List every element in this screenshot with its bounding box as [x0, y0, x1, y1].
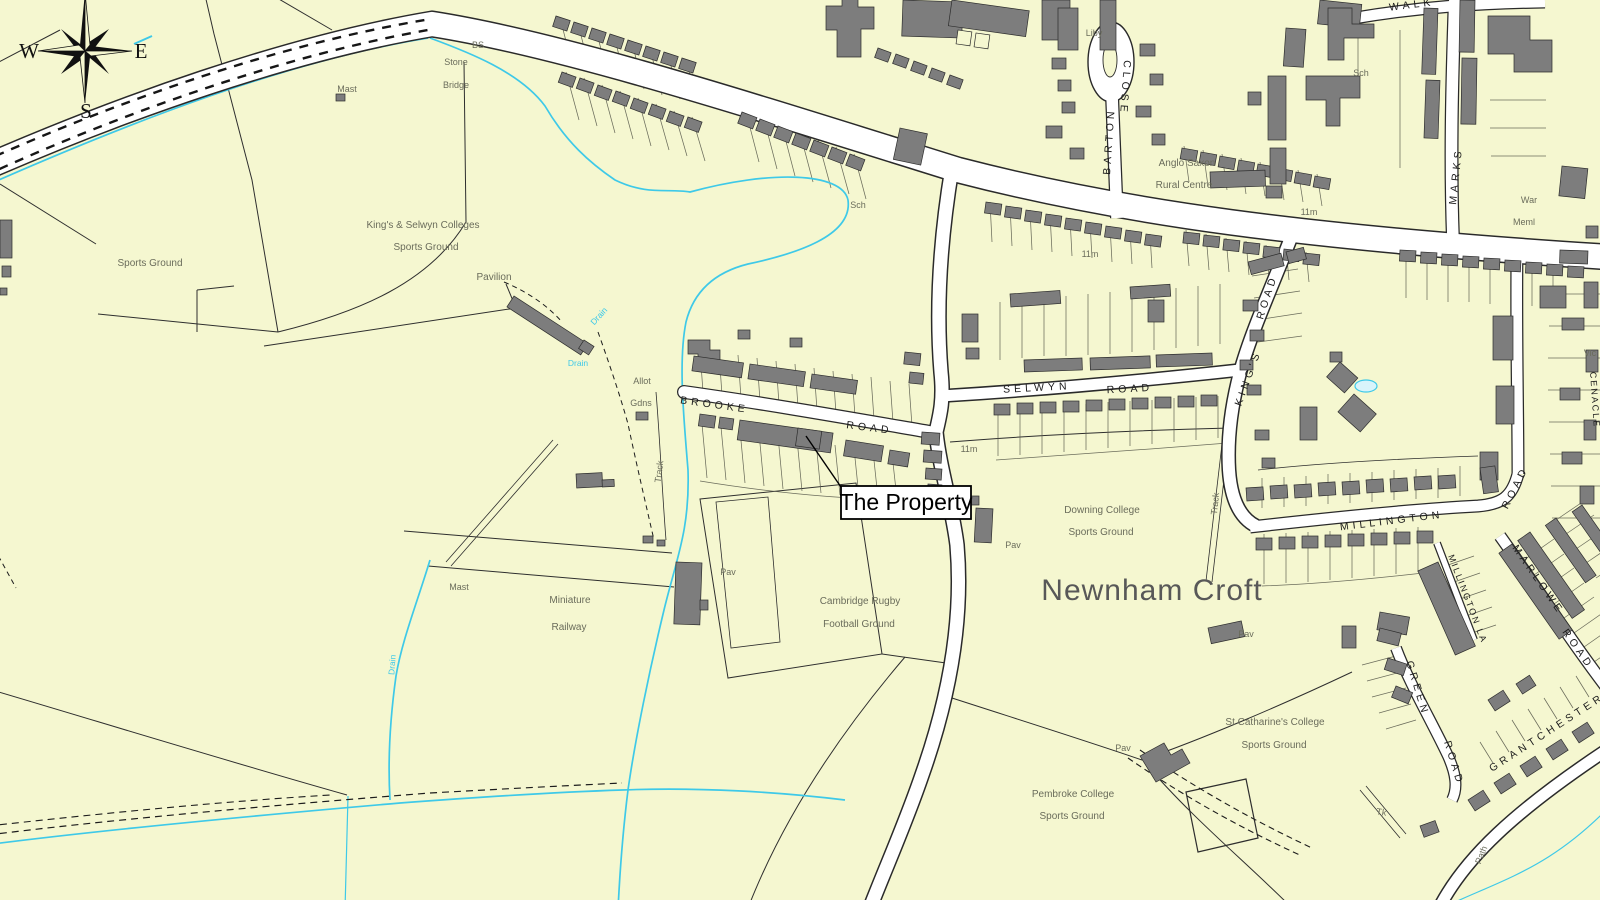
- label-tk: Tk: [1376, 806, 1388, 817]
- label-railway: Railway: [551, 622, 586, 633]
- property-label-text: The Property: [840, 489, 973, 515]
- label-mast-nw: Mast: [337, 84, 357, 94]
- label-stone: Stone: [444, 57, 468, 67]
- label-kings-selwyn-sports-ground: Sports Ground: [393, 242, 458, 253]
- label-vic: Vic: [1584, 348, 1597, 358]
- downing-pavilion: [974, 508, 993, 543]
- label-sch-ne: Sch: [1353, 68, 1369, 78]
- compass-west: W: [19, 39, 39, 63]
- label-miniature: Miniature: [549, 595, 591, 606]
- label-liby: Liby: [1086, 28, 1103, 38]
- label-11m-centre: 11m: [1082, 249, 1099, 259]
- label-pav-downing: Pav: [1005, 540, 1021, 550]
- label-drain-2: Drain: [568, 358, 589, 368]
- label-pembroke-sports-ground: Sports Ground: [1039, 811, 1104, 822]
- label-war: War: [1521, 195, 1537, 205]
- compass-south: S: [80, 99, 92, 123]
- road-label-selwyn-road: ROAD: [1106, 382, 1153, 396]
- pond: [1355, 380, 1377, 392]
- label-bridge: Bridge: [443, 80, 469, 90]
- label-pavilion: Pavilion: [476, 272, 511, 283]
- label-sch-centre: Sch: [850, 200, 866, 210]
- label-pav-rugby: Pav: [720, 567, 736, 577]
- label-cambridge-rugby: Cambridge Rugby: [820, 596, 901, 607]
- compass-east: E: [135, 39, 148, 63]
- label-allot: Allot: [633, 376, 651, 386]
- war-memorial-building: [1559, 166, 1588, 199]
- label-pav-newnham: Pav: [1238, 629, 1254, 639]
- label-anglo-saxon: Anglo Saxon: [1159, 158, 1216, 169]
- label-downing-college: Downing College: [1064, 505, 1140, 516]
- label-kings-selwyn-colleges: King's & Selwyn Colleges: [366, 220, 479, 231]
- label-gdns: Gdns: [630, 398, 652, 408]
- label-newnham-croft: Newnham Croft: [1041, 574, 1262, 607]
- label-mast-s: Mast: [449, 582, 469, 592]
- os-style-map: Mast BS Stone Bridge Sports Ground King'…: [0, 0, 1600, 900]
- label-st-catharines-sports-ground: Sports Ground: [1241, 740, 1306, 751]
- label-pembroke-college: Pembroke College: [1032, 789, 1115, 800]
- rugby-pavilion: [674, 562, 702, 625]
- label-meml: Meml: [1513, 217, 1535, 227]
- mast-structure: [336, 94, 345, 101]
- map-canvas: Mast BS Stone Bridge Sports Ground King'…: [0, 0, 1600, 900]
- label-bs: BS: [472, 40, 484, 50]
- label-rural-centre: Rural Centre: [1156, 180, 1213, 191]
- label-11m-ne: 11m: [1301, 207, 1318, 217]
- label-downing-sports-ground: Sports Ground: [1068, 527, 1133, 538]
- label-st-catharines-college: St Catharine's College: [1225, 717, 1325, 728]
- the-property-building: [795, 428, 821, 449]
- label-pav-pembroke: Pav: [1115, 743, 1131, 753]
- label-football-ground: Football Ground: [823, 619, 895, 630]
- label-11m-mid: 11m: [961, 444, 978, 454]
- label-sports-ground-w: Sports Ground: [117, 258, 182, 269]
- label-drain-3: Drain: [386, 654, 397, 675]
